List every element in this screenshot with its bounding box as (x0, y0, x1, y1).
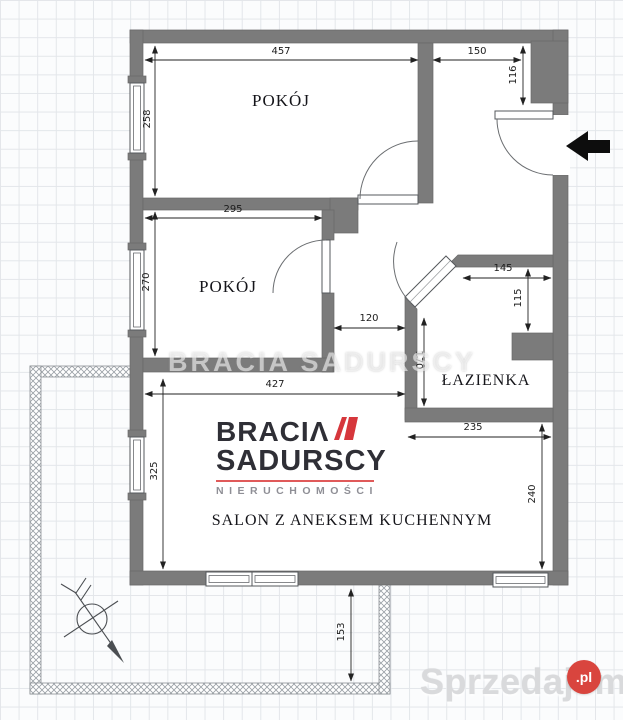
window-salon-left (130, 437, 144, 493)
dim-corridor-width: 120 (359, 314, 378, 324)
agency-logo-line1: BRACIΛ (216, 418, 329, 446)
room-label-pokoj-1: POKÓJ (252, 91, 310, 111)
portal-logo: Sprzedajemy .pl (420, 660, 620, 715)
dim-room2-depth: 270 (142, 272, 152, 291)
north-arrow-icon (61, 578, 124, 663)
portal-logo-badge-text: .pl (576, 669, 592, 685)
logo-divider (216, 480, 374, 482)
floor-plan: POKÓJ POKÓJ ŁAZIENKA SALON Z ANEKSEM KUC… (0, 0, 623, 720)
dim-kitchen-width: 235 (463, 423, 482, 433)
bath-duct (512, 333, 553, 360)
dim-salon-width: 427 (265, 380, 284, 390)
wall-right-lower (553, 175, 568, 585)
room-label-pokoj-2: POKÓJ (199, 277, 257, 297)
dim-bath-depth-right: 115 (514, 288, 524, 307)
window-salon-bottom (206, 572, 298, 586)
wall-top (130, 30, 568, 43)
entry-pilaster (531, 41, 568, 103)
watermark-text: BRACIA SADURSCY (168, 347, 458, 377)
portal-logo-badge: .pl (567, 660, 601, 694)
dim-hall-width: 150 (467, 47, 486, 57)
wall-room1-bottom (143, 198, 358, 210)
agency-logo-line2: SADURSCY (216, 447, 391, 476)
wall-bath-bottom (405, 408, 553, 422)
dim-room1-width: 457 (271, 47, 290, 57)
dim-bath-width: 145 (493, 264, 512, 274)
agency-logo: BRACIΛ SADURSCY NIERUCHOMOŚCI (216, 418, 391, 497)
wall-room1-right (418, 43, 433, 203)
room-label-salon: SALON Z ANEKSEM KUCHENNYM (212, 512, 493, 530)
wall-room2-right-upper (322, 210, 334, 240)
dim-entry-depth: 116 (509, 65, 519, 84)
dim-salon-depth: 325 (150, 461, 160, 480)
dim-room2-width: 295 (223, 205, 242, 215)
logo-roof-icon (332, 417, 358, 445)
dim-balcony-depth: 153 (337, 622, 347, 641)
dim-room1-depth: 258 (143, 109, 153, 128)
agency-logo-tagline: NIERUCHOMOŚCI (216, 485, 391, 497)
window-kitchen (493, 573, 548, 587)
dim-kitchen-depth: 240 (528, 484, 538, 503)
entrance-arrow-icon (566, 131, 610, 161)
